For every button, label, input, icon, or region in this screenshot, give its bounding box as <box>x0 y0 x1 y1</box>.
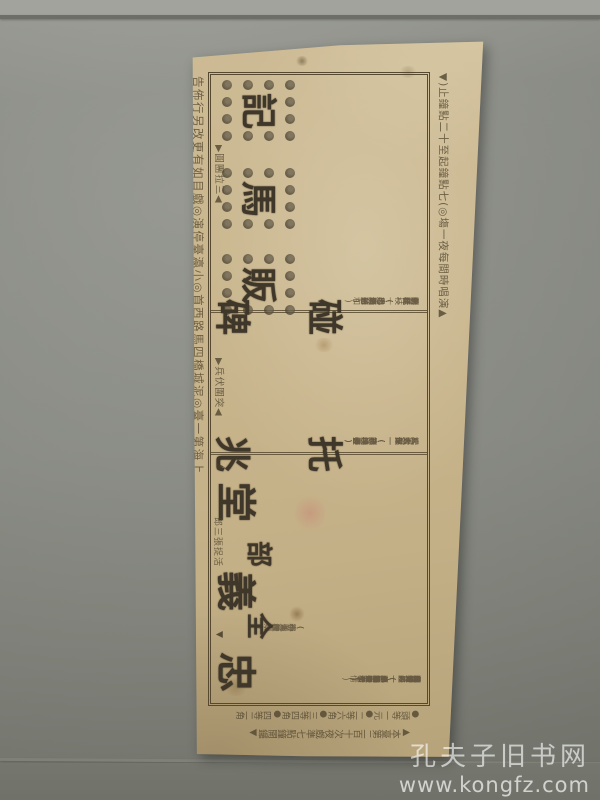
frame-dot <box>285 185 295 195</box>
scene-subtitle-fanmaji: ▶圓團拉三◀ <box>213 145 227 204</box>
cast-column: 二太保—(筱桂芬) <box>344 436 419 445</box>
frame-dot <box>264 131 274 141</box>
playbill-content-rotated: ▼)止鐘點二十至起鐘點七(◎塲一夜每間時唱演▲ 李奇—(周信芳)趙寵—(毛韻珂)… <box>183 48 452 758</box>
frame-dot <box>285 219 295 229</box>
watermark: 孔夫子旧书网 www.kongfz.com <box>399 742 590 798</box>
concrete-seam-top <box>0 0 600 15</box>
frame-dot <box>285 80 295 90</box>
frame-dot <box>285 202 295 212</box>
frame-dot <box>285 114 295 124</box>
scene-subtitle-tuozhao: ▶兵伏圍突◀ <box>213 358 227 417</box>
frame-dot <box>243 254 253 264</box>
frame-dot <box>285 288 295 298</box>
frame-dot <box>285 131 295 141</box>
dot-frame: 馬 <box>221 168 295 230</box>
scene-subtitle-zhongyitang: 郎三張捉活 <box>212 517 225 567</box>
watermark-site-name: 孔夫子旧书网 <box>399 742 590 773</box>
frame-dot <box>264 219 274 229</box>
frame-dot <box>243 219 253 229</box>
title-char-quan: 全 <box>245 613 271 639</box>
cast-list-fanmaji: 李奇—(周信芳)趙寵—(毛韻珂)李桂枝—(馮子和)春花—(小翠花)田旺—(必全四… <box>319 155 419 307</box>
frame-dot <box>264 168 274 178</box>
triangle-marker-up: ▲ <box>215 463 225 470</box>
title-char-ma: 馬 <box>239 181 275 217</box>
frame-dot <box>222 254 232 264</box>
title-char-tang: 堂 <box>215 482 255 522</box>
triangle-marker-down: ▼ <box>214 631 224 638</box>
frame-dot <box>222 80 232 90</box>
frame-dot <box>264 80 274 90</box>
watermark-url: www.kongfz.com <box>399 773 590 798</box>
frame-dot <box>222 219 232 229</box>
title-char-yi: 義 <box>215 571 255 611</box>
frame-dot <box>222 288 232 298</box>
frame-dot <box>222 114 232 124</box>
title-char-bei: 碑 <box>213 299 249 335</box>
frame-dot <box>264 305 274 315</box>
cast-column: 劉氏—(帶玉芳) <box>352 296 419 305</box>
title-char-ji: 記 <box>239 93 275 129</box>
frame-dot <box>243 131 253 141</box>
frame-dot <box>285 168 295 178</box>
frame-dot <box>285 271 295 281</box>
frame-dot <box>222 271 232 281</box>
frame-dot <box>264 254 274 264</box>
playbill-main-border: 李奇—(周信芳)趙寵—(毛韻珂)李桂枝—(馮子和)春花—(小翠花)田旺—(必全四… <box>208 72 430 706</box>
frame-dot <box>243 80 253 90</box>
playbill-paper: ▼)止鐘點二十至起鐘點七(◎塲一夜每間時唱演▲ 李奇—(周信芳)趙寵—(毛韻珂)… <box>183 38 485 762</box>
frame-dot <box>222 131 232 141</box>
cast-list-zhongyitang: 晁蓋—(王鴻壽)宋江—(麒麟童)吳用—(趙如泉)盧俊義—(小孟七)公孫勝—(馮志… <box>309 460 421 685</box>
performance-notice-column: ▲本臺第二百十次夜戲準七點鐘開鑼▼ <box>212 725 412 739</box>
concrete-seam-line <box>0 15 600 19</box>
frame-dot <box>222 97 232 107</box>
frame-dot <box>285 254 295 264</box>
ticket-price-column: ●頭等一元●二等六角●三等四角●四等二角 <box>206 708 420 721</box>
frame-dot <box>285 97 295 107</box>
showtime-header-line: ▼)止鐘點二十至起鐘點七(◎塲一夜每間時唱演▲ <box>438 73 451 503</box>
title-char-fan: 販 <box>239 267 275 303</box>
photograph-of-playbill: ▼)止鐘點二十至起鐘點七(◎塲一夜每間時唱演▲ 李奇—(周信芳)趙寵—(毛韻珂)… <box>0 0 600 800</box>
cast-column: 石秀—(小達子) <box>357 674 422 682</box>
title-char-peng: 碰 <box>305 299 341 335</box>
title-char-bu: 部 <box>245 541 271 567</box>
title-char-zhong: 忠 <box>215 652 255 692</box>
frame-dot <box>243 168 253 178</box>
dot-frame: 記 <box>221 80 295 142</box>
paper-surface: ▼)止鐘點二十至起鐘點七(◎塲一夜每間時唱演▲ 李奇—(周信芳)趙寵—(毛韻珂)… <box>183 38 485 762</box>
frame-dot <box>285 305 295 315</box>
theater-footer-line: 告佈行另改更有如目戲◎演停臺瀛小◎首西路馬四橋城泥◎臺一第海上 <box>190 76 206 731</box>
